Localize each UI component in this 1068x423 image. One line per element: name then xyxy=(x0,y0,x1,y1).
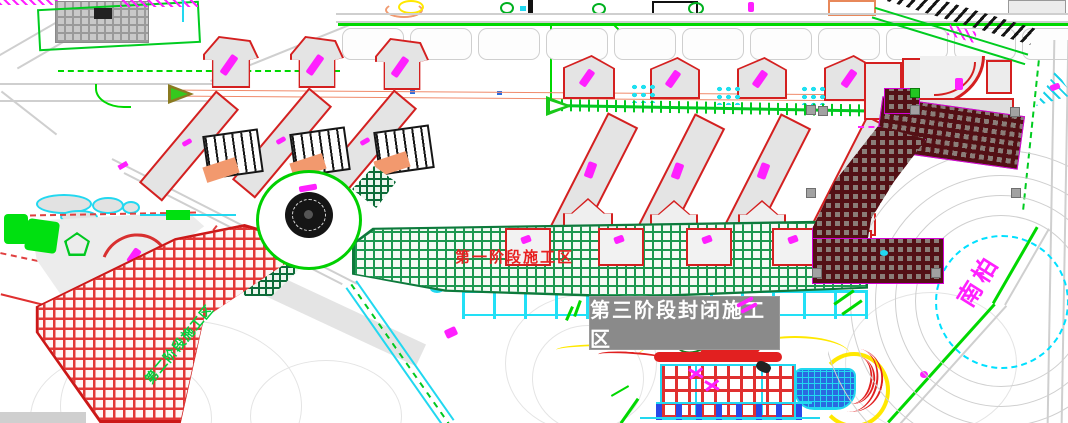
roadside-green-curve xyxy=(95,84,131,108)
parcel xyxy=(478,28,540,60)
red-dash-line xyxy=(0,252,38,262)
utility-line-cyan xyxy=(182,0,184,22)
grip-handle[interactable] xyxy=(931,268,941,278)
marker xyxy=(748,2,754,12)
lawn xyxy=(166,210,190,220)
grip-handle[interactable] xyxy=(1010,107,1020,117)
cottage-arc xyxy=(398,0,424,14)
building-tower xyxy=(737,57,787,99)
grip-handle[interactable] xyxy=(910,105,920,115)
building-tower xyxy=(563,55,615,99)
grip-handle[interactable] xyxy=(812,268,822,278)
grip-handle[interactable] xyxy=(806,188,816,198)
parcel xyxy=(614,28,676,60)
dot-cyan xyxy=(520,6,526,11)
water-edge xyxy=(640,417,820,419)
parcel xyxy=(750,28,812,60)
road-line xyxy=(1,91,57,136)
marker xyxy=(520,235,532,245)
phase3-zone-hatch-bottom[interactable] xyxy=(812,238,944,284)
parcel xyxy=(818,28,880,60)
grip-handle-green[interactable] xyxy=(910,88,920,98)
bottom-gray-bar xyxy=(0,412,86,423)
grip-handle[interactable] xyxy=(818,106,828,116)
roadside-green-dashes xyxy=(58,70,340,72)
building-tower xyxy=(650,57,700,99)
lawn xyxy=(24,218,60,254)
fountain-core xyxy=(304,210,313,219)
building-block xyxy=(1008,0,1066,14)
site-plan-canvas[interactable]: 第一阶段施工区 第三阶段封闭施工区 第二阶段施工区 xyxy=(0,0,1068,423)
flag-inner xyxy=(550,101,565,111)
pavilion-inner xyxy=(67,235,88,254)
marker xyxy=(444,326,459,339)
building-block xyxy=(94,8,112,19)
parcel xyxy=(546,28,608,60)
phase3-label: 第三阶段封闭施工区 xyxy=(590,294,779,352)
building-base xyxy=(686,228,732,266)
tree-grid xyxy=(800,85,826,105)
hatched-wall xyxy=(120,0,198,7)
dot-cyan xyxy=(880,250,888,256)
hatched-wall xyxy=(0,0,60,5)
wall-segment xyxy=(528,0,533,13)
grip-handle[interactable] xyxy=(806,105,816,115)
marker xyxy=(955,78,963,90)
circle-fountain xyxy=(285,192,333,238)
grip-handle[interactable] xyxy=(1011,188,1021,198)
building-block xyxy=(986,60,1012,94)
marker xyxy=(613,235,625,245)
phase1-label: 第一阶段施工区 xyxy=(455,246,605,267)
pond xyxy=(92,197,124,214)
parcel xyxy=(682,28,744,60)
marker xyxy=(787,235,799,245)
marker xyxy=(701,235,713,245)
greenway-line xyxy=(338,23,1068,26)
site-boundary-green xyxy=(37,1,201,51)
